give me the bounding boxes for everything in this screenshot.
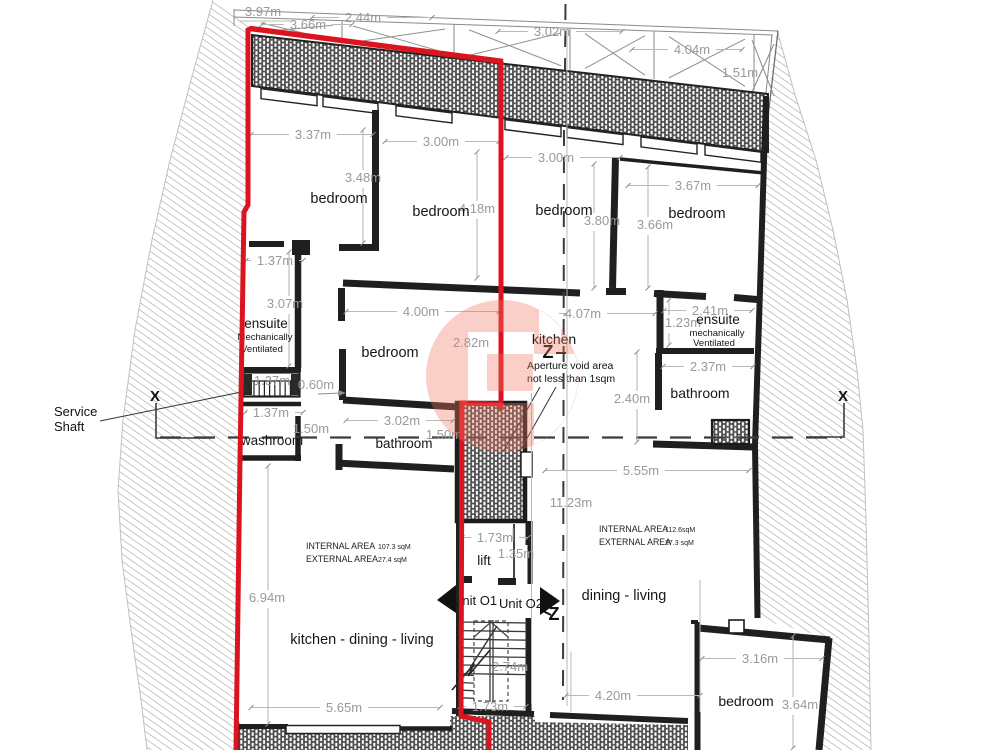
svg-text:X: X: [150, 388, 160, 405]
svg-text:EXTERNAL AREA: EXTERNAL AREA: [306, 554, 378, 564]
svg-text:bedroom: bedroom: [361, 345, 418, 361]
svg-text:bedroom: bedroom: [412, 204, 469, 220]
svg-text:5.65m: 5.65m: [326, 700, 362, 715]
svg-text:27.3 sqM: 27.3 sqM: [665, 540, 694, 547]
svg-text:kitchen - dining - living: kitchen - dining - living: [290, 632, 433, 648]
svg-text:bathroom: bathroom: [375, 436, 432, 451]
svg-text:bedroom: bedroom: [668, 206, 725, 222]
svg-text:3.67m: 3.67m: [675, 178, 711, 193]
svg-text:4.04m: 4.04m: [674, 42, 710, 57]
svg-text:washroom: washroom: [240, 433, 303, 448]
svg-text:1.37m: 1.37m: [257, 253, 293, 268]
svg-text:1.37m: 1.37m: [254, 373, 290, 388]
svg-text:2.40m: 2.40m: [614, 391, 650, 406]
svg-text:2.74m: 2.74m: [492, 659, 528, 674]
svg-text:dining - living: dining - living: [582, 588, 667, 604]
svg-text:Service: Service: [54, 404, 97, 419]
svg-text:Aperture void area: Aperture void area: [527, 360, 614, 372]
svg-text:INTERNAL AREA: INTERNAL AREA: [306, 541, 375, 551]
svg-text:3.07m: 3.07m: [267, 296, 303, 311]
svg-text:27.4 sqM: 27.4 sqM: [378, 557, 407, 564]
svg-text:lift: lift: [477, 553, 491, 568]
svg-text:0.60m: 0.60m: [298, 377, 334, 392]
svg-text:Shaft: Shaft: [54, 419, 85, 434]
svg-text:1.51m: 1.51m: [722, 65, 758, 80]
svg-text:4.00m: 4.00m: [403, 304, 439, 319]
svg-text:Ventilated: Ventilated: [241, 344, 283, 355]
svg-text:EXTERNAL AREA: EXTERNAL AREA: [599, 537, 671, 547]
svg-text:bedroom: bedroom: [535, 203, 592, 219]
svg-text:Ventilated: Ventilated: [693, 338, 735, 349]
svg-text:4.20m: 4.20m: [595, 688, 631, 703]
svg-text:3.00m: 3.00m: [538, 150, 574, 165]
svg-text:ensuite: ensuite: [244, 316, 288, 331]
svg-text:1.73m: 1.73m: [477, 530, 513, 545]
svg-text:bedroom: bedroom: [718, 693, 773, 709]
svg-text:5.55m: 5.55m: [623, 463, 659, 478]
svg-text:INTERNAL AREA: INTERNAL AREA: [599, 524, 668, 534]
svg-text:Mechanically: Mechanically: [238, 332, 293, 343]
svg-text:6.94m: 6.94m: [249, 590, 285, 605]
svg-text:2.44m: 2.44m: [345, 10, 381, 25]
svg-text:112.6sqM: 112.6sqM: [665, 527, 695, 534]
svg-text:Unit O2: Unit O2: [499, 596, 543, 611]
svg-text:1.35m: 1.35m: [498, 546, 534, 561]
svg-text:3.37m: 3.37m: [295, 127, 331, 142]
svg-text:3.02m: 3.02m: [384, 413, 420, 428]
svg-text:X: X: [838, 388, 848, 405]
svg-text:107.3 sqM: 107.3 sqM: [378, 544, 411, 551]
svg-text:11.23m: 11.23m: [550, 495, 592, 510]
svg-text:not less than 1sqm: not less than 1sqm: [527, 373, 615, 385]
svg-text:3.66m: 3.66m: [290, 17, 326, 32]
svg-text:3.64m: 3.64m: [782, 697, 818, 712]
svg-text:3.48m: 3.48m: [345, 170, 381, 185]
svg-text:3.00m: 3.00m: [423, 134, 459, 149]
svg-text:2.37m: 2.37m: [690, 359, 726, 374]
svg-text:1.73m: 1.73m: [472, 699, 508, 714]
svg-text:bedroom: bedroom: [310, 191, 367, 207]
svg-text:4.07m: 4.07m: [565, 306, 601, 321]
svg-text:3.97m: 3.97m: [245, 4, 281, 19]
svg-text:ensuite: ensuite: [696, 312, 740, 327]
svg-text:1.37m: 1.37m: [253, 405, 289, 420]
svg-text:3.16m: 3.16m: [742, 651, 778, 666]
svg-text:3.02m: 3.02m: [534, 24, 570, 39]
svg-text:bathroom: bathroom: [670, 385, 729, 401]
